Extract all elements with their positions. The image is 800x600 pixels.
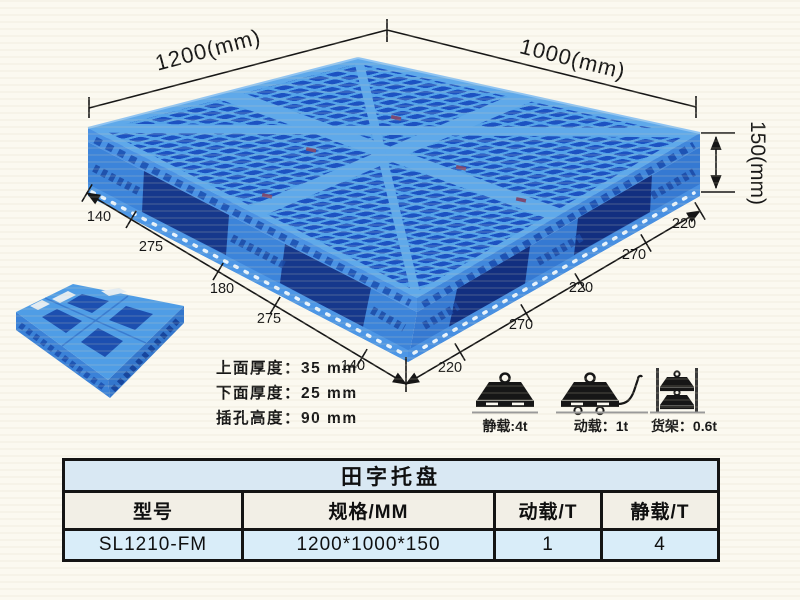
cell-model: SL1210-FM [65, 531, 241, 559]
svg-text:220: 220 [672, 216, 696, 232]
small-pallet-thumbnail [16, 284, 184, 398]
cell-dynamic-load: 1 [496, 531, 600, 559]
dynamic-load-label: 动载：1t [574, 418, 629, 434]
cell-spec: 1200*1000*150 [244, 531, 493, 559]
note-top-thickness: 上面厚度：35 mm [216, 358, 358, 377]
cell-static-load: 4 [603, 531, 717, 559]
svg-text:140: 140 [87, 209, 111, 225]
note-slot-height: 插孔高度：90 mm [216, 408, 358, 427]
svg-text:220: 220 [438, 360, 462, 376]
table-title: 田字托盘 [65, 461, 717, 490]
thickness-notes: 上面厚度：35 mm 下面厚度：25 mm 插孔高度：90 mm [216, 358, 358, 427]
col-header-model: 型号 [65, 493, 241, 528]
col-header-static-load: 静载/T [603, 493, 717, 528]
rack-load-icon [650, 368, 705, 413]
dim-height-label: 150(mm) [746, 121, 769, 205]
dim-width-label: 1200(mm) [153, 24, 264, 76]
col-header-spec: 规格/MM [244, 493, 493, 528]
static-load-label: 静载:4t [482, 418, 527, 434]
svg-text:180: 180 [210, 281, 234, 297]
product-sheet: 1200(mm) 1000(mm) 150(mm) 140 275 180 27… [0, 0, 800, 600]
svg-text:270: 270 [509, 317, 533, 333]
load-capacity-icons: 静载:4t 动载：1t 货架：0.6t [472, 368, 717, 434]
spec-table: 田字托盘 型号 规格/MM 动载/T 静载/T SL1210-FM 1200*1… [62, 458, 720, 562]
static-load-icon [472, 374, 538, 413]
svg-text:275: 275 [257, 311, 281, 327]
note-deck-thickness: 下面厚度：25 mm [216, 383, 358, 402]
dynamic-load-icon [556, 374, 648, 415]
rack-load-label: 货架：0.6t [650, 418, 717, 434]
svg-text:270: 270 [622, 247, 646, 263]
svg-text:275: 275 [139, 239, 163, 255]
svg-text:220: 220 [569, 280, 593, 296]
col-header-dynamic-load: 动载/T [496, 493, 600, 528]
